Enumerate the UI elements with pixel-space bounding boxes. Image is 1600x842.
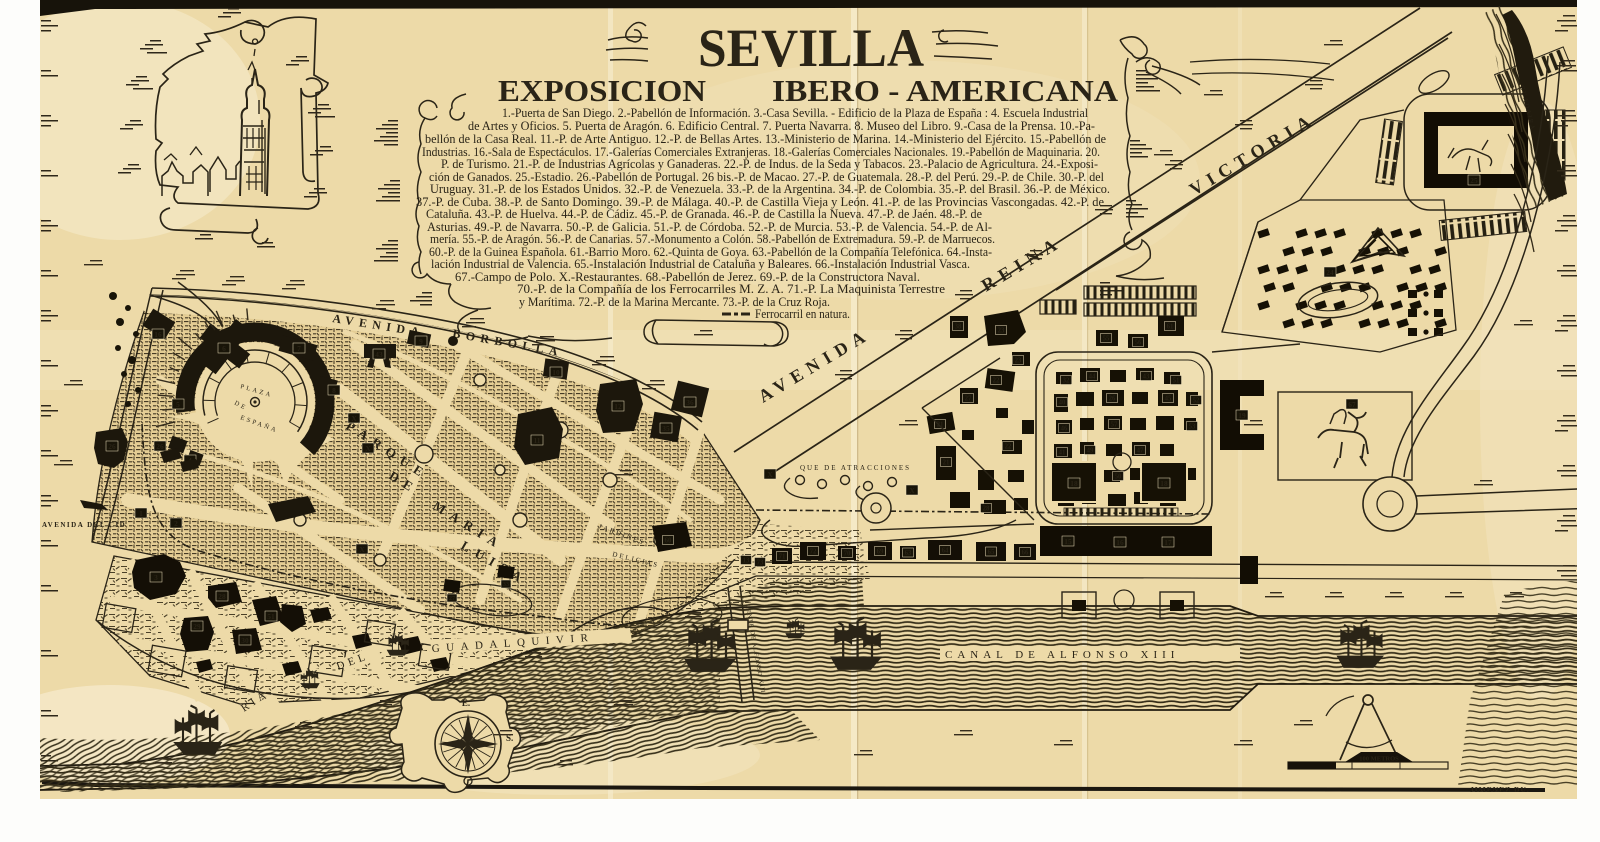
svg-text:24: 24: [1326, 268, 1334, 277]
svg-text:3: 3: [154, 573, 158, 582]
svg-text:70: 70: [844, 550, 851, 557]
svg-text:66: 66: [1022, 549, 1029, 556]
svg-text:13: 13: [743, 557, 750, 564]
svg-text:55: 55: [1103, 335, 1110, 342]
svg-text:57: 57: [1111, 421, 1118, 428]
svg-text:50: 50: [1115, 473, 1122, 480]
svg-text:IBERO - AMERICANA: IBERO - AMERICANA: [772, 73, 1119, 108]
svg-text:36: 36: [686, 398, 694, 407]
svg-text:16: 16: [1116, 538, 1124, 547]
svg-text:23: 23: [1015, 357, 1022, 364]
svg-text:33: 33: [503, 581, 509, 588]
svg-text:18: 18: [1160, 479, 1168, 488]
svg-text:EXPOSICION: EXPOSICION: [498, 73, 706, 108]
svg-text:X: X: [909, 486, 915, 495]
svg-text:46: 46: [1061, 425, 1068, 432]
svg-text:10: 10: [552, 368, 560, 377]
svg-text:6: 6: [222, 344, 226, 353]
svg-text:21: 21: [943, 459, 950, 466]
svg-text:5: 5: [176, 400, 180, 409]
svg-text:29: 29: [193, 622, 201, 631]
svg-text:22: 22: [1005, 443, 1012, 450]
svg-text:22: 22: [993, 377, 1000, 384]
svg-text:9: 9: [419, 337, 423, 346]
svg-text:32: 32: [1063, 377, 1070, 384]
svg-text:52: 52: [1193, 397, 1200, 404]
svg-text:51: 51: [1173, 377, 1180, 384]
svg-text:26: 26: [1109, 395, 1116, 402]
svg-text:67: 67: [1348, 400, 1356, 409]
svg-text:E.: E.: [462, 698, 470, 708]
svg-text:100 METROS: 100 METROS: [1359, 756, 1399, 763]
svg-text:28: 28: [983, 505, 990, 512]
svg-text:43: 43: [1143, 373, 1150, 380]
svg-text:65: 65: [988, 549, 995, 556]
svg-text:72: 72: [810, 548, 817, 555]
svg-text:18: 18: [1070, 479, 1078, 488]
svg-text:26: 26: [108, 442, 116, 451]
svg-text:44: 44: [1089, 373, 1096, 380]
svg-text:27: 27: [965, 395, 972, 402]
svg-text:7: 7: [297, 344, 301, 353]
svg-text:45: 45: [1165, 395, 1172, 402]
svg-text:56: 56: [1135, 339, 1142, 346]
svg-text:49: 49: [1087, 447, 1094, 454]
svg-text:69: 69: [877, 548, 884, 555]
svg-text:X: X: [767, 470, 773, 479]
svg-text:AVENIDA DEL CID: AVENIDA DEL CID: [42, 521, 126, 529]
svg-text:47: 47: [1137, 447, 1144, 454]
svg-text:73: 73: [757, 559, 764, 566]
svg-text:CANAL DE ALFONSO XIII: CANAL DE ALFONSO XIII: [945, 649, 1179, 661]
svg-text:Ferrocarril en natura.: Ferrocarril en natura.: [755, 306, 850, 321]
svg-text:QUE DE ATRACCIONES: QUE DE ATRACCIONES: [800, 464, 911, 472]
svg-text:17: 17: [1164, 538, 1172, 547]
svg-text:63: 63: [905, 550, 912, 557]
svg-text:71: 71: [779, 553, 786, 560]
svg-text:38: 38: [955, 323, 962, 330]
svg-text:23: 23: [998, 327, 1005, 334]
svg-text:15: 15: [1064, 537, 1072, 546]
svg-text:43: 43: [375, 350, 383, 359]
svg-text:X: X: [351, 414, 357, 423]
svg-text:11: 11: [534, 436, 541, 445]
svg-text:12: 12: [614, 402, 622, 411]
svg-text:19: 19: [1238, 411, 1246, 420]
svg-text:16: 16: [154, 330, 162, 339]
svg-text:X: X: [365, 444, 371, 453]
svg-text:JIMENEZ DU.: JIMENEZ DU.: [1470, 785, 1530, 794]
svg-text:30: 30: [241, 636, 249, 645]
svg-text:28: 28: [218, 592, 226, 601]
svg-text:60: 60: [665, 537, 672, 544]
svg-text:2: 2: [174, 519, 178, 528]
svg-text:27: 27: [449, 595, 455, 602]
svg-text:X: X: [359, 545, 365, 554]
svg-text:26: 26: [156, 442, 164, 451]
svg-text:61: 61: [1167, 323, 1174, 330]
svg-text:64: 64: [942, 547, 949, 554]
svg-text:41: 41: [1059, 449, 1066, 456]
svg-text:SEVILLA: SEVILLA: [698, 18, 924, 78]
svg-text:53: 53: [1189, 423, 1196, 430]
svg-text:40: 40: [1059, 399, 1066, 406]
svg-text:25: 25: [1470, 176, 1478, 185]
svg-text:35: 35: [662, 424, 670, 433]
svg-text:8: 8: [332, 386, 336, 395]
svg-text:1: 1: [139, 509, 143, 518]
svg-text:51: 51: [267, 612, 275, 621]
